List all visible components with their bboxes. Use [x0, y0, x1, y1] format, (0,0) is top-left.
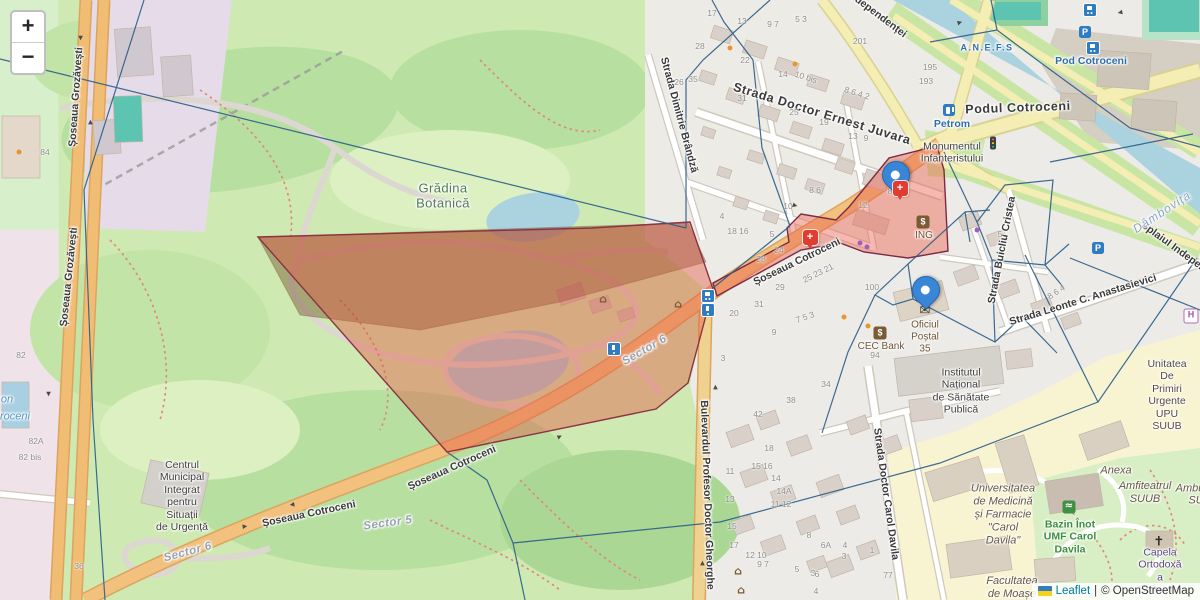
leaflet-link[interactable]: Leaflet — [1056, 585, 1091, 597]
map-overlay-layer — [0, 0, 1200, 600]
medical-cross-icon[interactable]: + — [893, 181, 908, 196]
zoom-out-button[interactable]: − — [12, 43, 44, 73]
attribution-bar: Leaflet | © OpenStreetMap — [1032, 583, 1200, 600]
zoom-control: + − — [10, 10, 46, 75]
ukraine-flag-icon — [1038, 586, 1052, 596]
map-canvas[interactable]: Șoseaua GrozăveștiȘoseaua GrozăveștiStra… — [0, 0, 1200, 600]
selection-polygon-main — [258, 222, 713, 452]
selection-polygon-corridor — [713, 146, 948, 296]
osm-link[interactable]: © OpenStreetMap — [1101, 585, 1194, 597]
medical-cross-icon[interactable]: + — [803, 230, 818, 245]
attribution-separator: | — [1094, 585, 1097, 597]
zoom-in-button[interactable]: + — [12, 12, 44, 42]
